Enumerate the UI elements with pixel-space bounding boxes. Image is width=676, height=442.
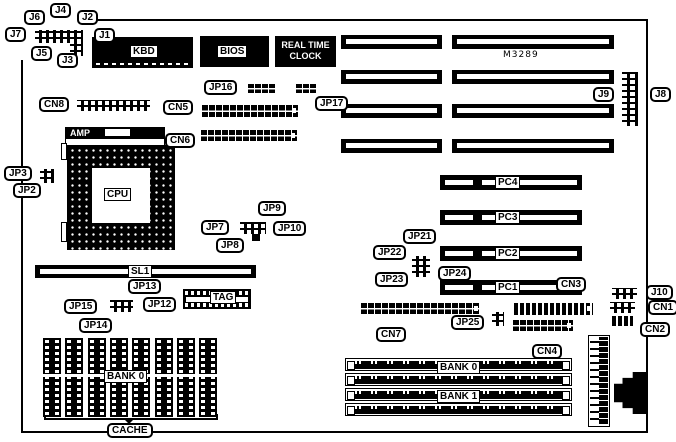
- box-label-simm-bank0: BANK 0: [437, 361, 480, 374]
- isa-slot: [452, 139, 614, 153]
- chip-pin-column: [77, 340, 81, 415]
- chip-pin-column: [211, 340, 215, 415]
- isa-slot: [452, 35, 614, 49]
- board-edge-left: [21, 60, 23, 433]
- jp25-jumper-block: [492, 312, 504, 326]
- chip-center-notch: [199, 374, 217, 377]
- isa-slot-stripe: [346, 143, 437, 148]
- psu-pin-column-right: [599, 337, 608, 425]
- cn5-connector: [201, 105, 298, 117]
- callout-j2: J2: [77, 10, 98, 25]
- simm-slot: [345, 403, 572, 416]
- simm-contact-strip: [355, 376, 563, 384]
- amp-label: AMP: [70, 128, 90, 138]
- callout-cn7: CN7: [376, 327, 406, 342]
- callout-cn3: CN3: [556, 277, 586, 292]
- isa-slot: [341, 70, 442, 84]
- chip-center-notch: [155, 374, 173, 377]
- kbd-pin-dashes: [96, 63, 189, 65]
- pci-slot-label-pc2: PC2: [495, 247, 520, 260]
- simm-slot: [345, 373, 572, 386]
- box-label-cpu: CPU: [104, 188, 131, 201]
- callout-cn4: CN4: [532, 344, 562, 359]
- callout-jp15: JP15: [64, 299, 97, 314]
- motherboard-layout-diagram: REAL TIME CLOCK M3289 AMP: [0, 0, 676, 442]
- rtc-label-line1: REAL TIME: [275, 40, 336, 51]
- rtc-label-line2: CLOCK: [275, 51, 336, 62]
- keyboard-din-connector: [614, 372, 648, 414]
- cn8-connector: [77, 100, 150, 111]
- chip-center-notch: [65, 374, 83, 377]
- chip-pin-column: [90, 340, 94, 415]
- callout-jp3: JP3: [4, 166, 32, 181]
- chip-pin-column: [45, 340, 49, 415]
- callout-jp22: JP22: [373, 245, 406, 260]
- cn7-connector: [360, 303, 480, 314]
- callout-jp12: JP12: [143, 297, 176, 312]
- board-edge-top: [85, 19, 647, 21]
- isa-slot: [341, 35, 442, 49]
- chip-center-notch: [177, 374, 195, 377]
- rtc-label: REAL TIME CLOCK: [275, 40, 336, 62]
- chip-pin-column: [55, 340, 59, 415]
- box-label-simm-bank1: BANK 1: [437, 390, 480, 403]
- cache-chip-socket: [155, 338, 173, 417]
- callout-jp10: JP10: [273, 221, 306, 236]
- cache-chip-socket: [43, 338, 61, 417]
- pci-slot-label-pc3: PC3: [495, 211, 520, 224]
- isa-slot: [452, 70, 614, 84]
- box-label-cache-bank0: BANK 0: [104, 370, 147, 383]
- isa-slot-stripe: [457, 143, 609, 148]
- cn6-connector: [200, 130, 297, 141]
- callout-j10: J10: [646, 285, 673, 300]
- callout-jp14: JP14: [79, 318, 112, 333]
- callout-cn8: CN8: [39, 97, 69, 112]
- jp16-header: [247, 84, 276, 93]
- cn2-connector: [610, 316, 633, 326]
- j9-j8-power-connector: [622, 72, 638, 126]
- power-supply-connector: [588, 335, 610, 427]
- real-time-clock-block: REAL TIME CLOCK: [275, 36, 336, 67]
- simm-clip-left: [347, 361, 355, 370]
- pci-slot-stripe: [445, 251, 473, 256]
- chip-pin-column: [179, 340, 183, 415]
- simm-clip-left: [347, 391, 355, 400]
- chip-pin-column: [167, 340, 171, 415]
- cache-chip-socket: [177, 338, 195, 417]
- jp17-header: [295, 84, 316, 93]
- pci-slot-label-pc1: PC1: [495, 281, 520, 294]
- pci-slot-pc3: PC3: [440, 210, 582, 225]
- isa-slot-stripe: [457, 39, 609, 44]
- box-label-tag: TAG: [210, 291, 236, 304]
- callout-cn6: CN6: [165, 133, 195, 148]
- pci-slot-label-pc4: PC4: [495, 176, 520, 189]
- callout-jp13: JP13: [128, 279, 161, 294]
- callout-j5: J5: [31, 46, 52, 61]
- isa-slot-stripe: [346, 74, 437, 79]
- simm-contact-strip: [355, 406, 563, 414]
- callout-jp17: JP17: [315, 96, 348, 111]
- socket-notch-lower: [61, 222, 67, 242]
- chip-pin-column: [67, 340, 71, 415]
- callout-j9: J9: [593, 87, 614, 102]
- pci-slot-stripe: [445, 285, 473, 290]
- jp8-jumper-stub: [252, 234, 260, 241]
- box-label-kbd: KBD: [130, 45, 158, 58]
- cn1-header: [610, 302, 635, 313]
- pci-slot-stripe: [445, 215, 473, 220]
- box-label-sl1: SL1: [128, 265, 152, 278]
- callout-jp25: JP25: [451, 315, 484, 330]
- chip-pin-column: [201, 340, 205, 415]
- chip-pin-column: [189, 340, 193, 415]
- callout-jp16: JP16: [204, 80, 237, 95]
- jp12-jp15-jumper-block: [110, 300, 133, 312]
- j10-header: [612, 288, 637, 299]
- cache-chip-socket: [199, 338, 217, 417]
- callout-j7: J7: [5, 27, 26, 42]
- board-edge-right: [646, 19, 648, 433]
- simm-clip-left: [347, 376, 355, 385]
- simm-clip-right: [562, 361, 570, 370]
- callout-cn5: CN5: [163, 100, 193, 115]
- callout-jp9: JP9: [258, 201, 286, 216]
- amp-white-tab: [105, 129, 130, 136]
- chip-center-notch: [43, 374, 61, 377]
- callout-cn1: CN1: [648, 300, 676, 315]
- callout-jp2: JP2: [13, 183, 41, 198]
- chip-pin-column: [157, 340, 161, 415]
- callout-cn2: CN2: [640, 322, 670, 337]
- simm-clip-right: [562, 376, 570, 385]
- cache-chip-socket: [65, 338, 83, 417]
- callout-j4: J4: [50, 3, 71, 18]
- simm-clip-right: [562, 406, 570, 415]
- box-label-bios: BIOS: [217, 45, 247, 58]
- isa-slot-stripe: [346, 108, 437, 113]
- isa-slot: [341, 139, 442, 153]
- callout-jp7: JP7: [201, 220, 229, 235]
- board-model-text: M3289: [503, 50, 539, 60]
- isa-slot-stripe: [457, 74, 609, 79]
- cn3-connector: [512, 303, 593, 315]
- socket-notch-upper: [61, 143, 67, 160]
- callout-cache: CACHE: [107, 423, 153, 438]
- isa-slot-stripe: [457, 108, 609, 113]
- callout-j3: J3: [57, 53, 78, 68]
- isa-slot-stripe: [346, 39, 437, 44]
- callout-j1: J1: [94, 28, 115, 43]
- jp21-jp24-jumper-block: [412, 256, 430, 277]
- callout-jp21: JP21: [403, 229, 436, 244]
- pci-slot-pc4: PC4: [440, 175, 582, 190]
- isa-slot: [452, 104, 614, 118]
- callout-jp24: JP24: [438, 266, 471, 281]
- callout-jp23: JP23: [375, 272, 408, 287]
- simm-clip-left: [347, 406, 355, 415]
- jp7-jp10-jumper-block: [240, 222, 266, 234]
- simm-clip-right: [562, 391, 570, 400]
- callout-jp8: JP8: [216, 238, 244, 253]
- pci-slot-pc2: PC2: [440, 246, 582, 261]
- isa-slot: [341, 104, 442, 118]
- callout-j8: J8: [650, 87, 671, 102]
- pci-slot-stripe: [445, 180, 473, 185]
- amp-heatsink-bar: AMP: [65, 127, 165, 138]
- jp2-jp3-jumper-block: [40, 169, 54, 183]
- cn4-connector: [512, 320, 573, 331]
- callout-j6: J6: [24, 10, 45, 25]
